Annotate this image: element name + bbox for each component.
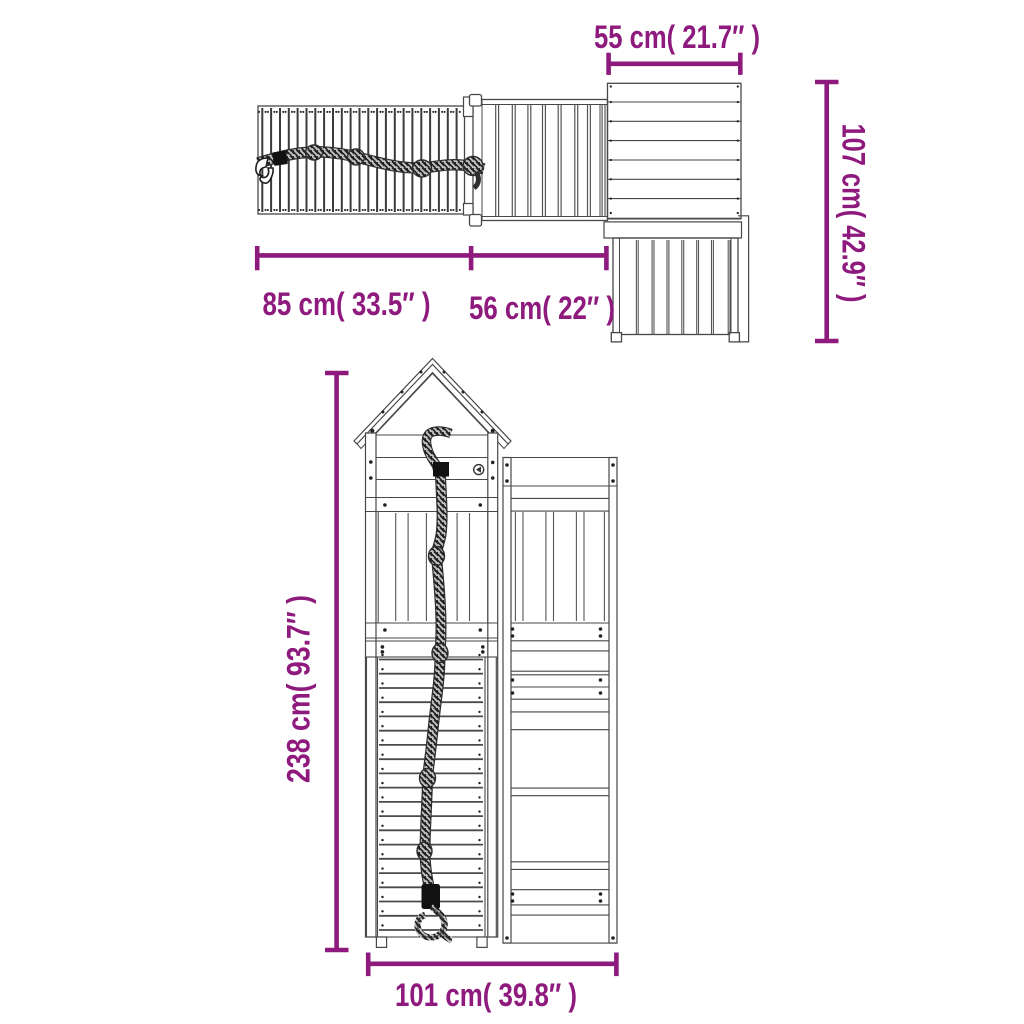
- svg-text:101 cm( 39.8″ ): 101 cm( 39.8″ ): [395, 977, 577, 1013]
- svg-text:107 cm( 42.9″ ): 107 cm( 42.9″ ): [836, 124, 872, 303]
- svg-text:55 cm( 21.7″ ): 55 cm( 21.7″ ): [594, 19, 760, 55]
- svg-text:56 cm( 22″ ): 56 cm( 22″ ): [469, 290, 615, 326]
- svg-text:238 cm( 93.7″ ): 238 cm( 93.7″ ): [281, 595, 317, 783]
- svg-text:85 cm( 33.5″ ): 85 cm( 33.5″ ): [263, 286, 431, 322]
